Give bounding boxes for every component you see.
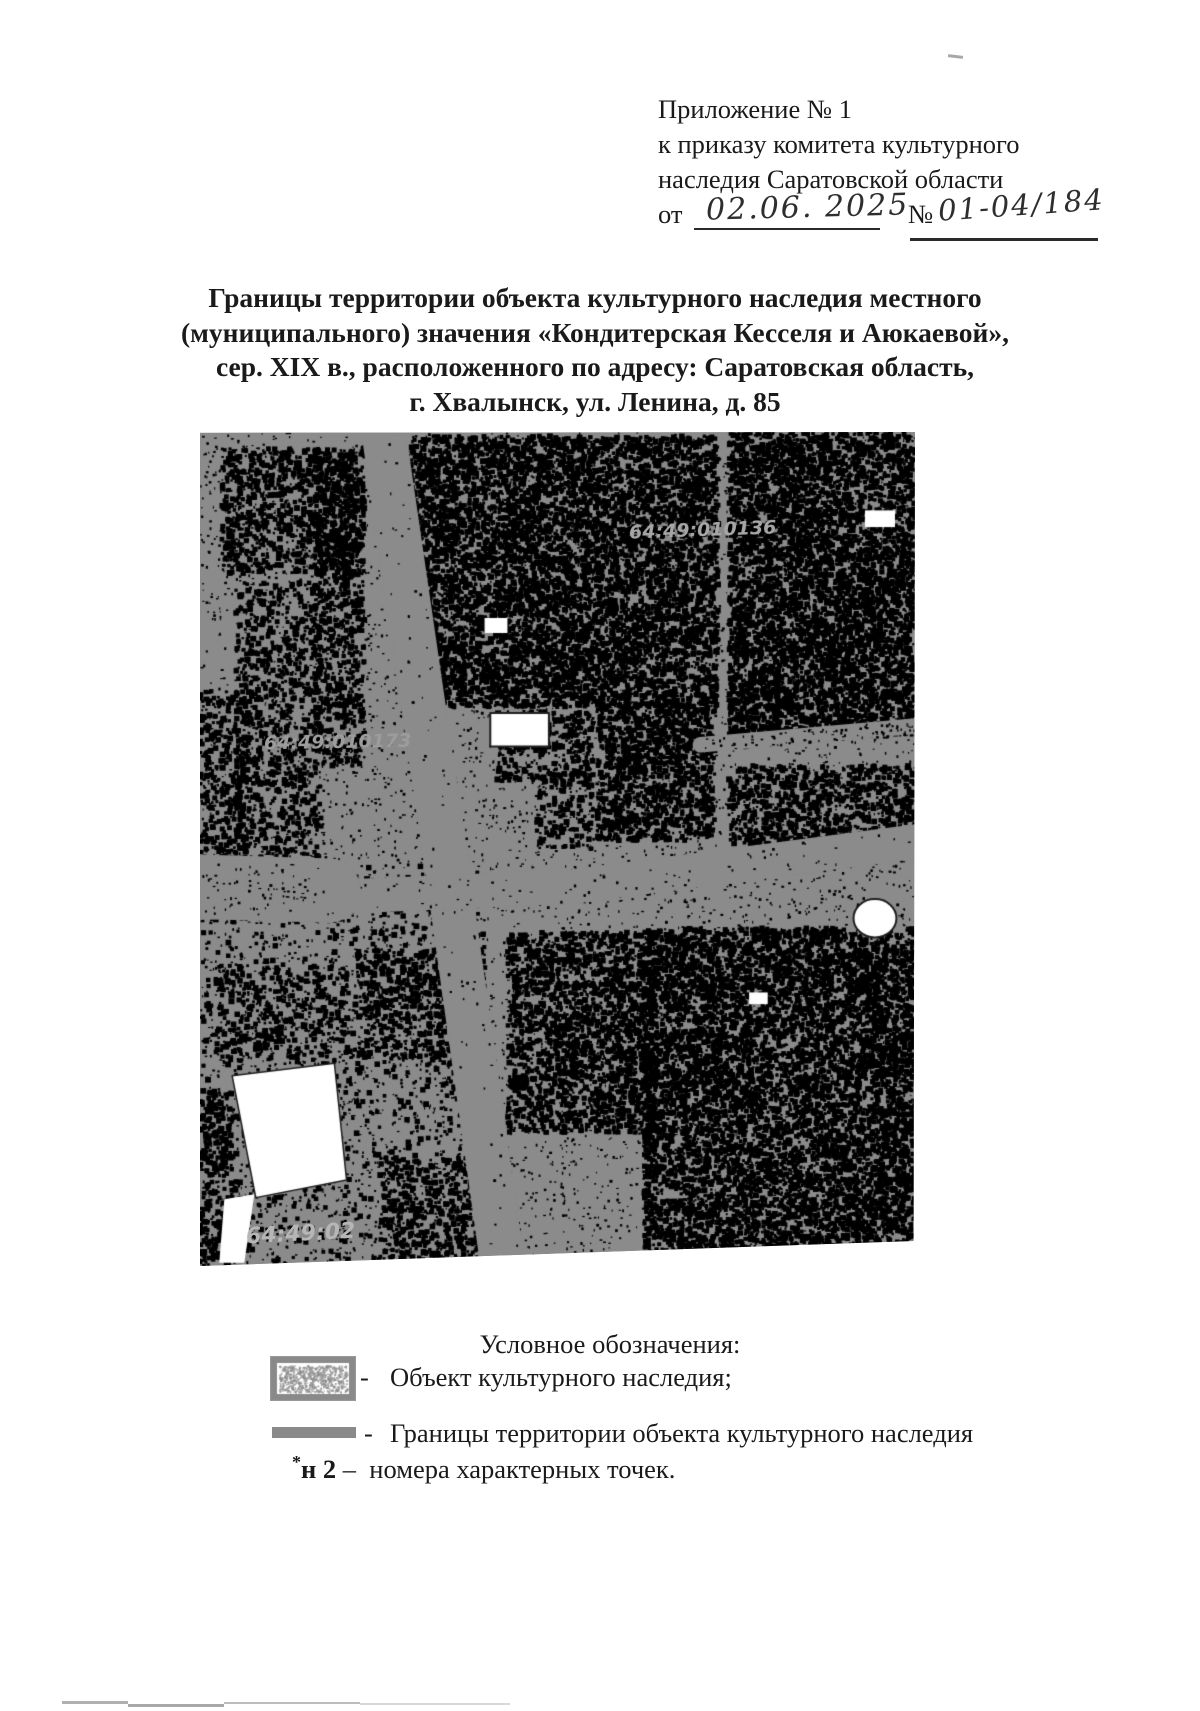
scan-artifact-bottom-4 (360, 1703, 510, 1705)
object-swatch (270, 1356, 356, 1401)
title-line-4: г. Хвалынск, ул. Ленина, д. 85 (160, 385, 1030, 420)
scan-artifact-bottom-3 (224, 1702, 360, 1704)
date-underline (694, 228, 880, 230)
header-appendix-line: Приложение № 1 (658, 92, 852, 127)
legend-object-label: Объект культурного наследия; (390, 1362, 732, 1393)
document-title: Границы территории объекта культурного н… (160, 281, 1030, 419)
legend-dash-3: – (336, 1454, 369, 1484)
header-number-sign: № (908, 197, 933, 232)
footnote-asterisk: * (292, 1452, 301, 1472)
legend-dash-1: - (360, 1362, 369, 1393)
header-from-label: от (658, 197, 682, 232)
title-line-1: Границы территории объекта культурного н… (160, 281, 1030, 316)
header-order-line: к приказу комитета культурного (658, 127, 1020, 162)
legend-boundary-label: Границы территории объекта культурного н… (390, 1418, 973, 1449)
title-line-3: сер. XIX в., расположенного по адресу: С… (160, 350, 1030, 385)
legend-points-label: номера характерных точек. (369, 1454, 675, 1484)
number-underline (910, 238, 1098, 241)
legend-dash-2: - (364, 1418, 373, 1449)
legend-points-row: *н 2 – номера характерных точек. (292, 1452, 675, 1485)
satellite-image (200, 432, 915, 1266)
boundary-line-swatch (272, 1427, 356, 1438)
scanned-document-page: { "page": { "background": "#ffffff" }, "… (0, 0, 1200, 1711)
scan-artifact-top (948, 54, 963, 59)
scan-artifact-bottom-2 (128, 1704, 224, 1707)
point-code: н 2 (301, 1454, 336, 1484)
handwritten-date: 02.06. 2025 (706, 187, 910, 227)
territory-boundary-map: 64:49:01013664:49:01017364:49:02 (200, 432, 915, 1266)
title-line-2: (муниципального) значения «Кондитерская … (160, 316, 1030, 351)
legend-title: Условное обозначения: (340, 1329, 880, 1360)
scan-artifact-bottom-1 (62, 1701, 128, 1704)
